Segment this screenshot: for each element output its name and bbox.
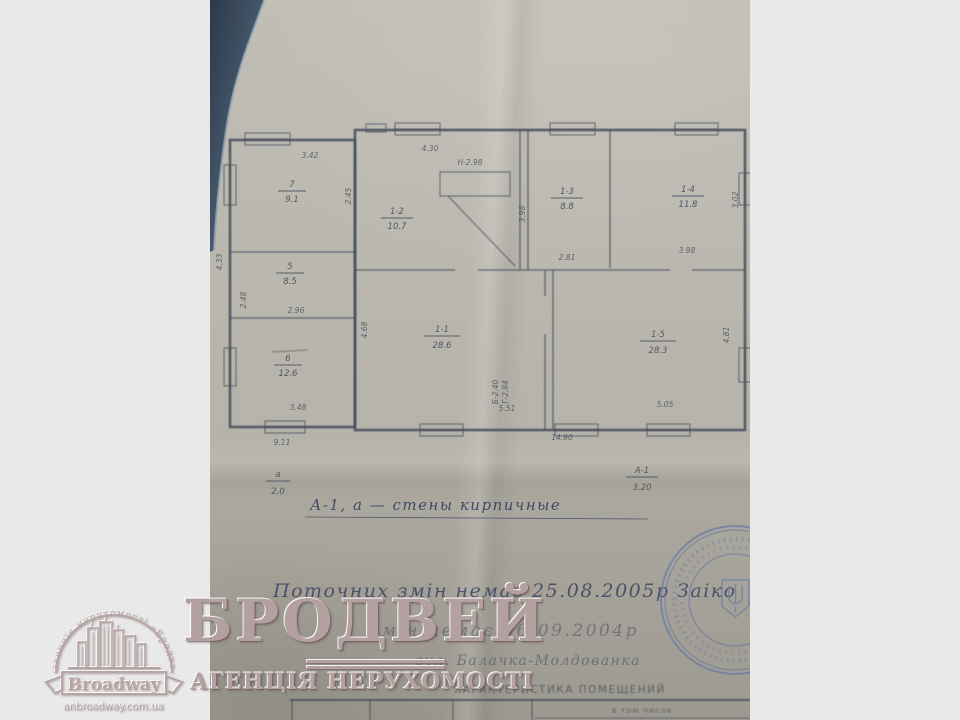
room-number: 1-5 [651, 330, 665, 340]
room-label: 1-5 28.3 [640, 330, 676, 356]
wall-legend-fractions: а 2.0 А-1 3.20 [266, 466, 658, 497]
dimension-label: 2.45 [344, 187, 353, 204]
plan-walls [224, 123, 750, 436]
dimension-label: 5.51 [499, 404, 516, 413]
dimension-label: 3.42 [302, 151, 319, 160]
window-hatches [224, 123, 750, 436]
room-label: 1-1 28.6 [424, 325, 460, 351]
broadway-logo: агенція нерухомості «Бродвей» Broadway a… [38, 580, 190, 716]
dimension-label: 4.68 [360, 321, 369, 338]
watermark-brand-subtitle: АГЕНЦІЯ НЕРУХОМОСТІ [190, 669, 534, 695]
room-label: 6 12.6 [274, 354, 302, 379]
room-number: 7 [289, 180, 295, 190]
dimension-label: 3.98 [518, 205, 527, 222]
fraction-top: а [275, 470, 280, 480]
dimension-label: 2.96 [288, 306, 305, 315]
ribbon-icon: Broadway [46, 672, 182, 695]
watermark-brand-title: БРОДВЕЙ [183, 592, 547, 650]
room-area: 8.5 [283, 277, 297, 287]
dimension-label: 9.11 [274, 438, 291, 447]
room-area: 10.7 [388, 222, 408, 232]
dimension-label: 14.90 [551, 433, 573, 442]
logo-ribbon-text: Broadway [67, 675, 161, 695]
dimension-label: 4.30 [422, 144, 439, 153]
room-label: 7 9.1 [278, 180, 306, 205]
handwritten-note: вул. Балачка-Молдованка [415, 653, 641, 669]
dimension-label: 4.81 [722, 327, 731, 344]
room-area: 28.3 [649, 346, 668, 356]
screenshot-stage: 3.42 4.30 Н-2.98 2.45 3.98 3.02 2.81 3.9… [0, 0, 960, 720]
room-number: 1-3 [560, 187, 574, 197]
room-labels: 7 9.1 5 8.5 6 12.6 1-2 10.7 [274, 180, 704, 379]
dimension-label: 3.98 [679, 246, 696, 255]
room-number: 6 [285, 354, 291, 364]
room-area: 8.8 [560, 202, 574, 212]
room-area: 9.1 [285, 195, 299, 205]
dimension-label: 4.33 [215, 253, 224, 270]
fraction-top: А-1 [634, 466, 649, 476]
photo-background-corner [210, 0, 264, 252]
room-label: 5 8.5 [276, 262, 304, 287]
room-label: 1-3 8.8 [551, 187, 583, 212]
room-label: 1-2 10.7 [381, 207, 413, 232]
room-area: 28.6 [433, 341, 453, 351]
dimension-label: 2.81 [559, 253, 576, 262]
room-number: 1-1 [435, 325, 449, 335]
logo-site-url: anbroadway.com.ua [64, 702, 164, 713]
dimension-label: 3.48 [290, 403, 307, 412]
handwritten-note: А-1, а — стены кирпичные [309, 496, 561, 514]
dimension-label: Н-2.98 [457, 158, 482, 167]
fraction-bottom: 3.20 [633, 483, 652, 493]
watermark-divider-bar [307, 660, 445, 663]
dimension-label: 3.02 [731, 191, 740, 208]
room-number: 1-2 [390, 207, 404, 217]
dimension-label: 2.48 [239, 291, 248, 308]
table-column-header: в том числе [612, 706, 673, 715]
note-underline [305, 517, 648, 519]
fraction-bottom: 2.0 [271, 487, 285, 497]
room-area: 11.8 [679, 200, 699, 210]
wall-material-note: А-1, а — стены кирпичные [305, 496, 648, 519]
room-label: 1-4 11.8 [672, 185, 704, 210]
room-number: 5 [287, 262, 292, 272]
skyline-icon [56, 615, 172, 673]
dimension-label: Б-2.40 [491, 380, 500, 405]
room-area: 12.6 [279, 369, 299, 379]
dimension-label: Г-2.84 [501, 380, 510, 404]
room-number: 1-4 [681, 185, 695, 195]
dimension-label: 5.05 [657, 400, 674, 409]
